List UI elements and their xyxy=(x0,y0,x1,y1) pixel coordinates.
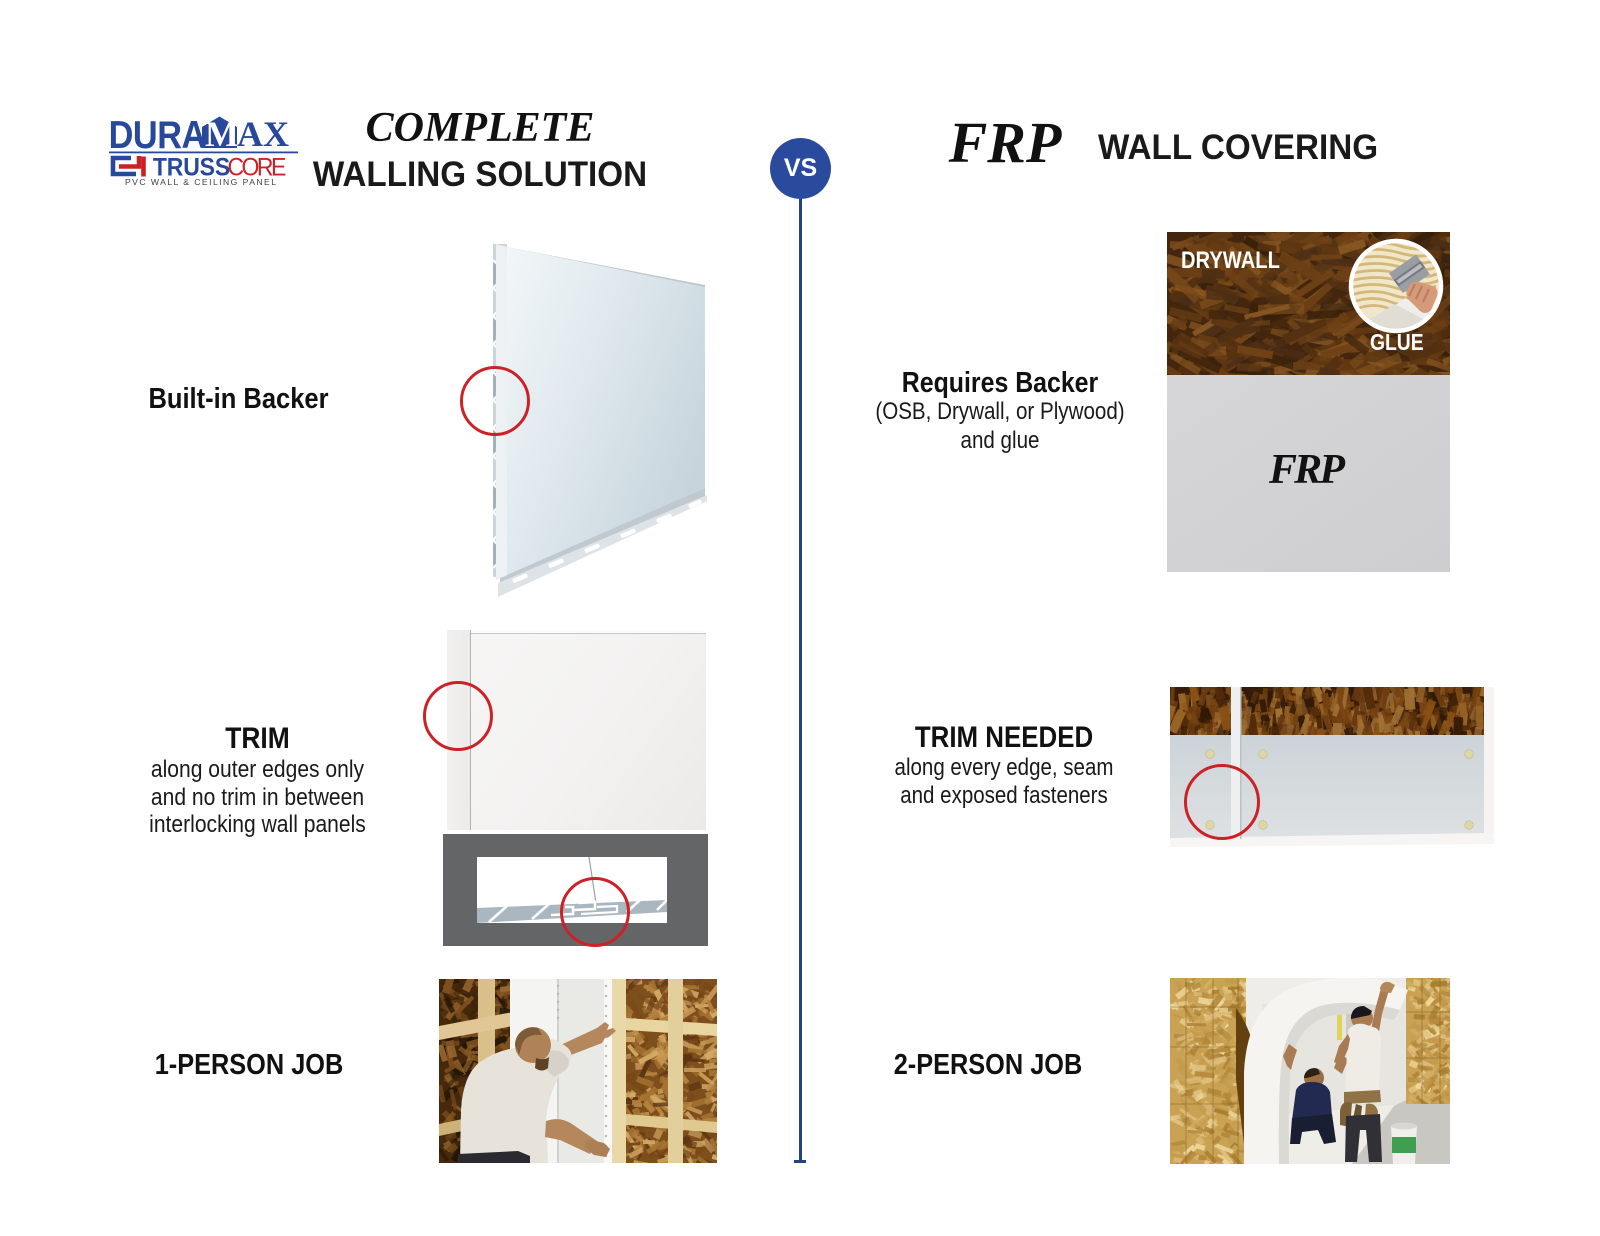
svg-text:DURA: DURA xyxy=(109,113,207,157)
svg-text:DRYWALL: DRYWALL xyxy=(1181,246,1280,273)
svg-text:GLUE: GLUE xyxy=(1370,331,1424,356)
svg-text:PVC WALL & CEILING PANEL: PVC WALL & CEILING PANEL xyxy=(125,177,277,187)
svg-text:FRP: FRP xyxy=(1268,447,1345,493)
svg-text:M: M xyxy=(205,114,239,154)
svg-text:AX: AX xyxy=(237,114,289,154)
